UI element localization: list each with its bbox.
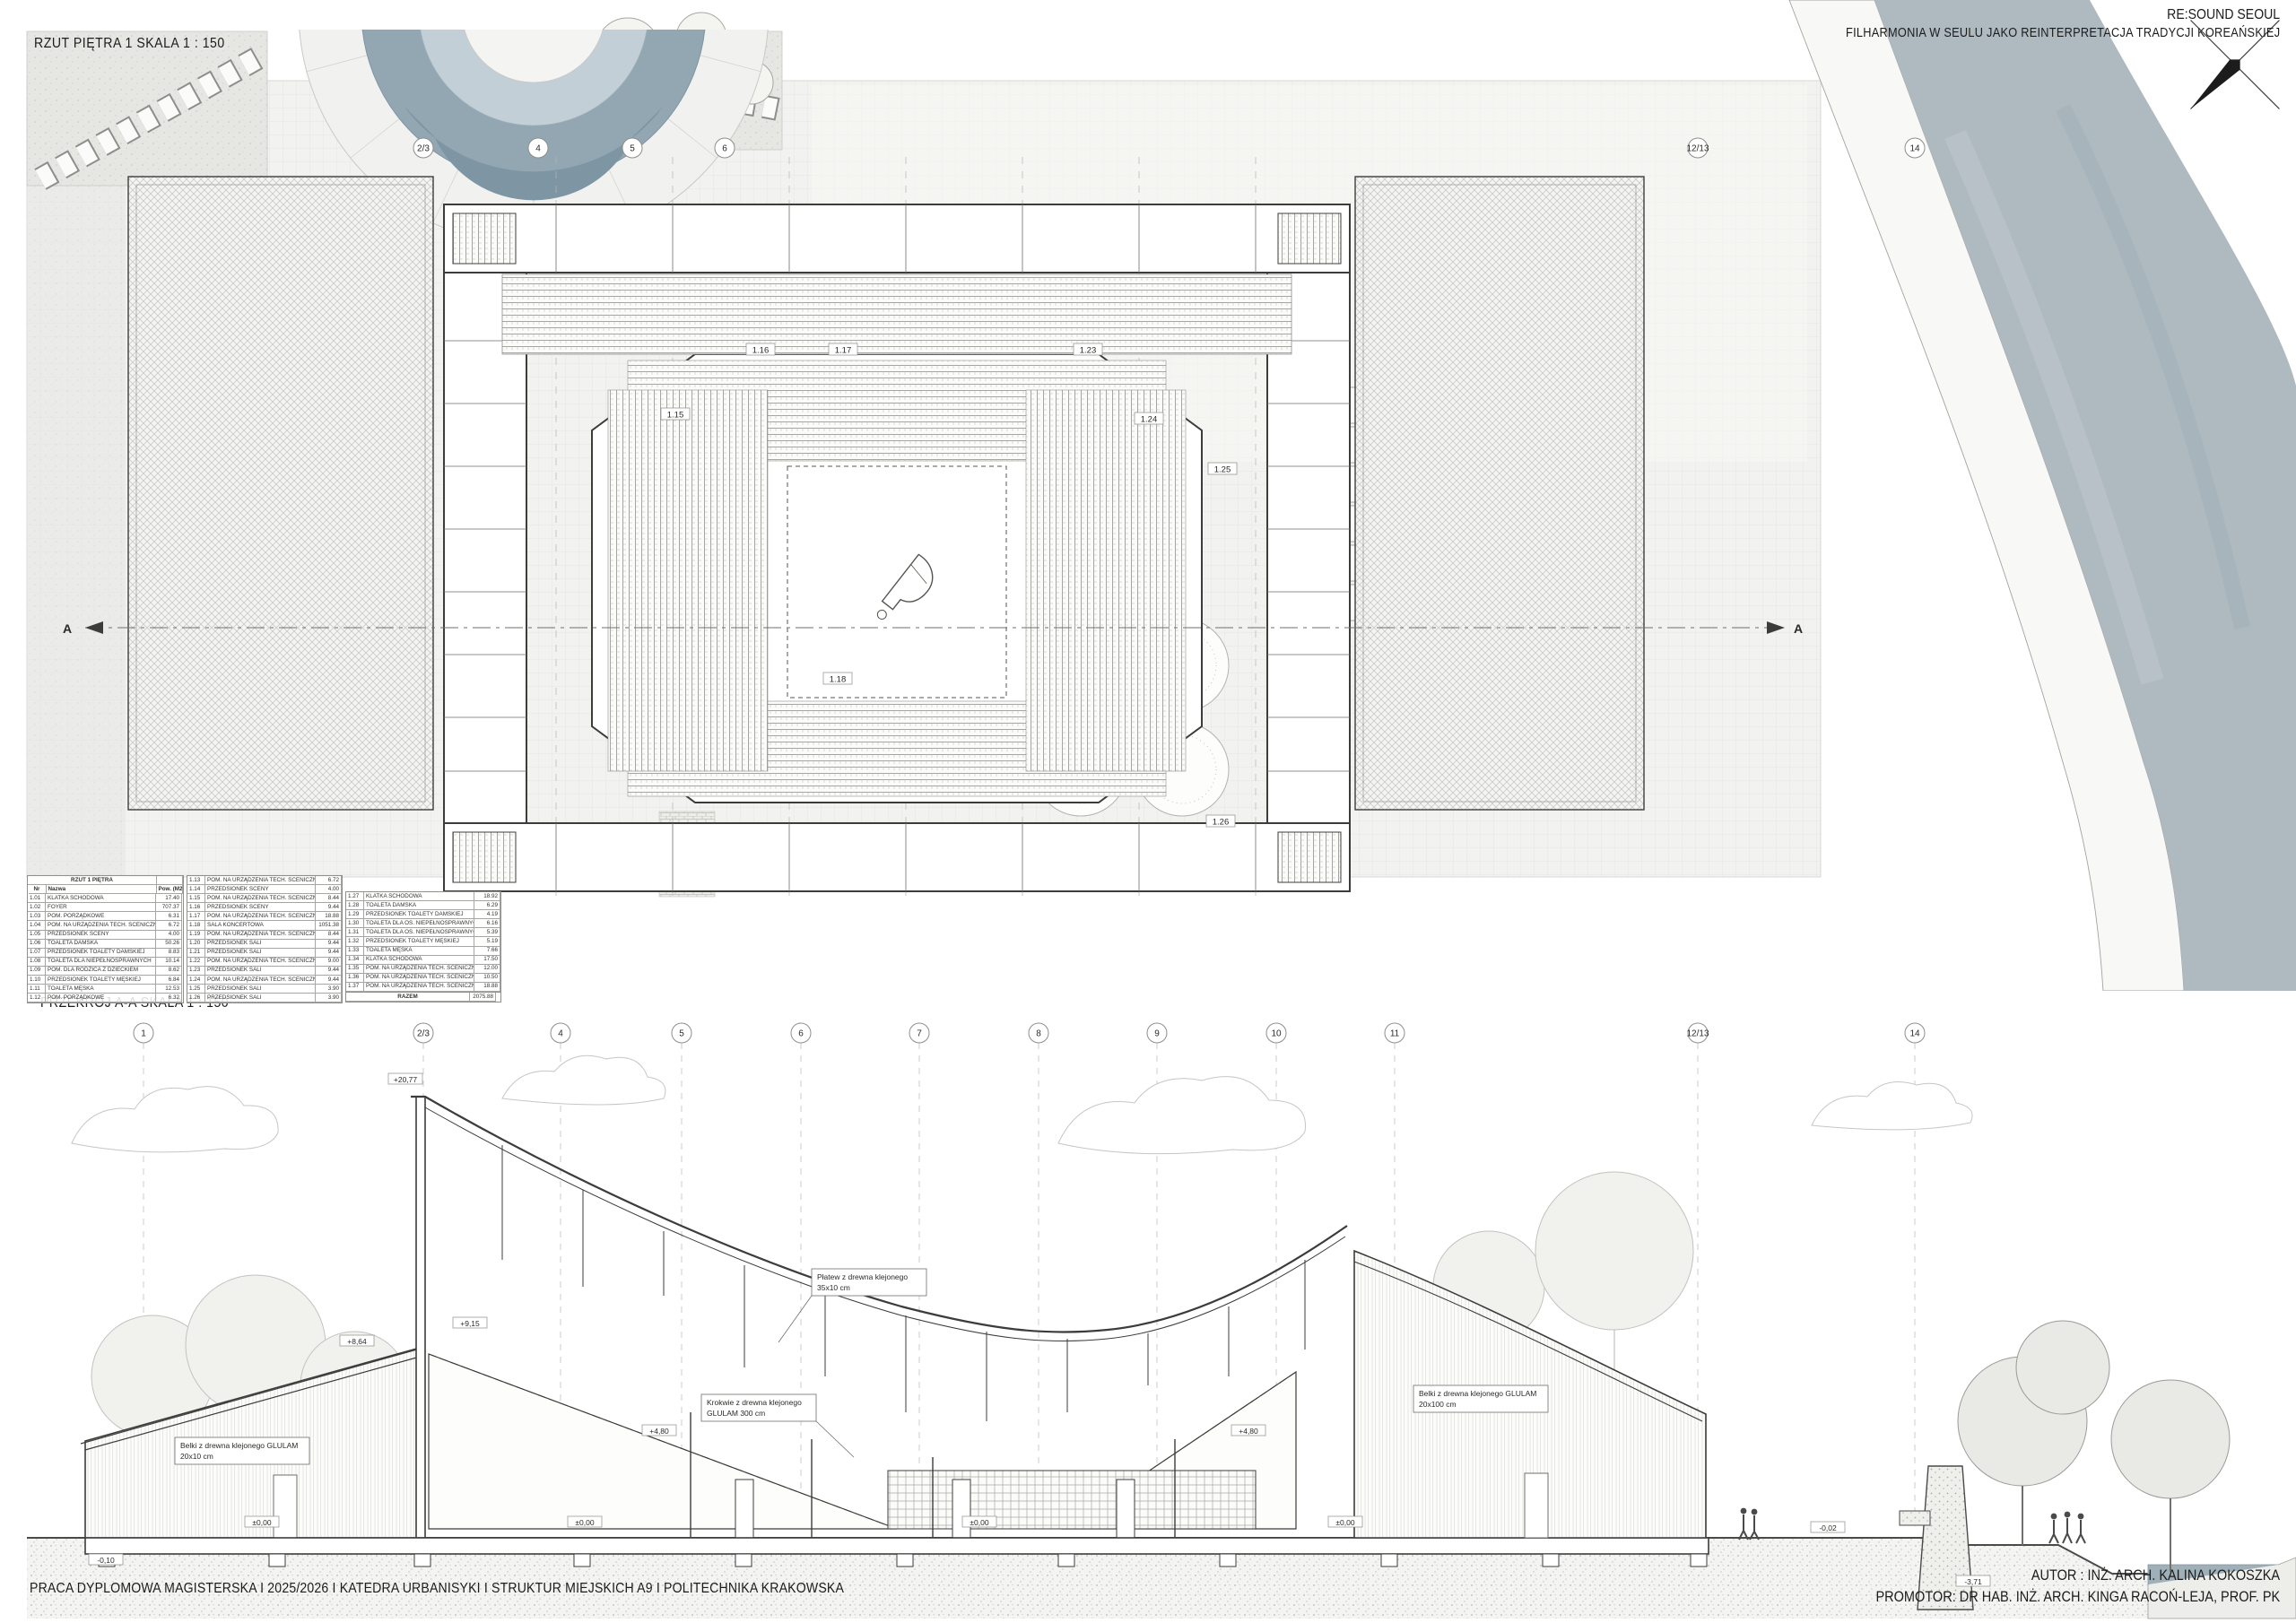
schedule-row: 1.02 FOYER 707.37 xyxy=(28,903,183,912)
svg-text:Płatew z drewna klejonego: Płatew z drewna klejonego xyxy=(817,1272,908,1281)
svg-text:6: 6 xyxy=(798,1029,804,1039)
schedule-row: 1.09 POM. DLA RODZICA Z DZIECKIEM 8.62 xyxy=(28,967,183,976)
wing-south xyxy=(444,823,1350,891)
presentation-board: { "colors":{"paper":"#ffffff","line":"#3… xyxy=(0,0,2296,1623)
annotation-krokwie: Krokwie z drewna klejonego GLULAM 300 cm xyxy=(701,1394,854,1457)
schedule-row: 1.06 TOALETA DAMSKA 50.26 xyxy=(28,940,183,949)
hall-seating-east xyxy=(1026,390,1186,771)
svg-text:14: 14 xyxy=(1909,1029,1920,1039)
svg-text:20x100 cm: 20x100 cm xyxy=(1419,1400,1457,1409)
schedule-group-3: 1.27 KLATKA SCHODOWA 18.92 1.28 TOALETA … xyxy=(345,891,501,993)
svg-text:±0,00: ±0,00 xyxy=(970,1518,988,1527)
river-corridor xyxy=(1789,0,2296,991)
svg-text:-0,10: -0,10 xyxy=(97,1556,115,1565)
schedule-row: 1.22 POM. NA URZĄDZENIA TECH. SCENICZNEJ… xyxy=(187,958,342,967)
svg-text:GLULAM 300 cm: GLULAM 300 cm xyxy=(707,1409,765,1418)
people-trio xyxy=(2049,1512,2085,1543)
schedule-row: 1.15 POM. NA URZĄDZENIA TECH. SCENICZNEJ… xyxy=(187,894,342,903)
svg-text:5: 5 xyxy=(679,1029,684,1039)
total-label: RAZEM xyxy=(346,993,470,1002)
svg-text:+8,64: +8,64 xyxy=(347,1337,367,1346)
svg-text:1.15: 1.15 xyxy=(667,411,684,421)
wing-north xyxy=(444,204,1350,273)
schedule-total-row: RAZEM 2075.88 xyxy=(345,993,501,1002)
room-schedule: RZUT 1 PIĘTRA Nr Nazwa Pow. (M2) 1.01 KL… xyxy=(27,875,483,1003)
floor-slab xyxy=(85,1538,1709,1554)
svg-text:+4,80: +4,80 xyxy=(649,1427,669,1436)
schedule-row: 1.23 PRZEDSIONEK SALI 9.44 xyxy=(187,967,342,976)
rooms-west xyxy=(444,273,526,823)
schedule-row: 1.33 TOALETA MĘSKA 7.66 xyxy=(346,947,500,956)
svg-text:+9,15: +9,15 xyxy=(460,1319,480,1328)
schedule-row: 1.34 KLATKA SCHODOWA 17.50 xyxy=(346,956,500,965)
svg-text:±0,00: ±0,00 xyxy=(252,1518,271,1527)
section-trees-right xyxy=(1958,1321,2230,1572)
schedule-group-2: 1.13 POM. NA URZĄDZENIA TECH. SCENICZNEJ… xyxy=(187,875,343,1003)
board-title: RE:SOUND SEOUL xyxy=(2167,7,2280,23)
schedule-row: 1.37 POM. NA URZĄDZENIA TECH. SCENICZNEJ… xyxy=(346,983,500,992)
svg-text:4: 4 xyxy=(558,1029,563,1039)
schedule-group-1: RZUT 1 PIĘTRA Nr Nazwa Pow. (M2) 1.01 KL… xyxy=(27,875,184,1003)
svg-text:2/3: 2/3 xyxy=(417,1029,430,1039)
section-grid-bubbles: 1 2/3 4 5 6 7 8 9 10 11 12/13 14 xyxy=(134,1023,1925,1043)
svg-text:Belki z drewna klejonego GLULA: Belki z drewna klejonego GLULAM xyxy=(1419,1389,1536,1398)
schedule-row: 1.32 PRZEDSIONEK TOALETY MĘSKIEJ 5.19 xyxy=(346,937,500,946)
svg-text:Krokwie z drewna klejonego: Krokwie z drewna klejonego xyxy=(707,1398,802,1407)
section-drawing: 1 2/3 4 5 6 7 8 9 10 11 12/13 14 xyxy=(0,991,2296,1623)
schedule-row: 1.35 POM. NA URZĄDZENIA TECH. SCENICZNEJ… xyxy=(346,965,500,974)
schedule-row: 1.11 TOALETA MĘSKA 12.53 xyxy=(28,985,183,994)
svg-text:1.23: 1.23 xyxy=(1080,346,1097,356)
floor-plan-drawing: A A 2/3 4 5 6 12/13 14 1.15 1.16 1.17 1.… xyxy=(0,0,2296,991)
svg-text:+20,77: +20,77 xyxy=(394,1075,418,1084)
svg-text:12/13: 12/13 xyxy=(1686,144,1709,154)
choir-risers xyxy=(888,1471,1256,1529)
svg-text:6: 6 xyxy=(722,144,727,154)
people-pair xyxy=(1739,1508,1759,1540)
title-block: RE:SOUND SEOUL FILHARMONIA W SEULU JAKO … xyxy=(1787,7,2280,40)
schedule-row: 1.26 PRZEDSIONEK SALI 3.90 xyxy=(187,994,342,1002)
svg-text:1.16: 1.16 xyxy=(752,346,770,356)
svg-text:1.25: 1.25 xyxy=(1214,465,1231,475)
clouds xyxy=(72,1055,1972,1153)
schedule-row: 1.01 KLATKA SCHODOWA 17.40 xyxy=(28,894,183,903)
schedule-row: 1.31 TOALETA DLA OS. NIEPEŁNOSPRAWNYCH 5… xyxy=(346,928,500,937)
schedule-row: 1.36 POM. NA URZĄDZENIA TECH. SCENICZNEJ… xyxy=(346,974,500,983)
schedule-row: 1.17 POM. NA URZĄDZENIA TECH. SCENICZNEJ… xyxy=(187,912,342,921)
author-line: AUTOR : INŻ. ARCH. KALINA KOKOSZKA xyxy=(2031,1565,2280,1586)
svg-text:1.18: 1.18 xyxy=(830,675,847,685)
svg-text:-0,02: -0,02 xyxy=(1819,1523,1837,1532)
annotation-platew: Płatew z drewna klejonego 35x10 cm xyxy=(778,1269,926,1342)
footer-credits: PRACA DYPLOMOWA MAGISTERSKA I 2025/2026 … xyxy=(30,1581,844,1597)
svg-text:1.24: 1.24 xyxy=(1141,415,1158,425)
garden-top-left xyxy=(27,31,267,186)
schedule-row: 1.29 PRZEDSIONEK TOALETY DAMSKIEJ 4.19 xyxy=(346,910,500,919)
svg-text:±0,00: ±0,00 xyxy=(575,1518,594,1527)
plan-title: RZUT PIĘTRA 1 SKALA 1 : 150 xyxy=(34,36,225,52)
schedule-row: 1.07 PRZEDSIONEK TOALETY DAMSKIEJ 8.83 xyxy=(28,949,183,958)
schedule-row: 1.20 PRZEDSIONEK SALI 9.44 xyxy=(187,940,342,949)
svg-text:5: 5 xyxy=(630,144,635,154)
schedule-row: 1.21 PRZEDSIONEK SALI 9.44 xyxy=(187,949,342,958)
svg-text:20x10 cm: 20x10 cm xyxy=(180,1452,213,1461)
svg-text:2/3: 2/3 xyxy=(417,144,430,154)
svg-text:35x10 cm: 35x10 cm xyxy=(817,1283,850,1292)
schedule-title: RZUT 1 PIĘTRA xyxy=(28,876,157,885)
svg-text:12/13: 12/13 xyxy=(1686,1029,1709,1039)
svg-text:+4,80: +4,80 xyxy=(1239,1427,1258,1436)
svg-text:10: 10 xyxy=(1271,1029,1282,1039)
svg-text:9: 9 xyxy=(1154,1029,1160,1039)
cut-label-left: A xyxy=(63,621,72,636)
svg-text:1.17: 1.17 xyxy=(835,346,852,356)
svg-text:4: 4 xyxy=(535,144,541,154)
schedule-row: 1.18 SALA KONCERTOWA 1051.38 xyxy=(187,921,342,930)
schedule-row: 1.03 POM. PORZĄDKOWE 6.31 xyxy=(28,912,183,921)
schedule-row: 1.24 POM. NA URZĄDZENIA TECH. SCENICZNEJ… xyxy=(187,976,342,985)
schedule-row: 1.05 PRZEDSIONEK SCENY 4.00 xyxy=(28,931,183,940)
total-value: 2075.88 xyxy=(470,993,496,1002)
col-name: Nazwa xyxy=(47,885,157,894)
schedule-row: 1.10 PRZEDSIONEK TOALETY MĘSKIEJ 6.84 xyxy=(28,976,183,985)
concert-hall xyxy=(502,274,1291,803)
rake-west xyxy=(429,1354,897,1529)
annotation-belki-west: Belki z drewna klejonego GLULAM 20x10 cm xyxy=(175,1437,309,1464)
cut-label-right: A xyxy=(1794,621,1803,636)
svg-text:11: 11 xyxy=(1390,1029,1400,1039)
roof-west xyxy=(128,177,433,810)
rooms-east xyxy=(1267,273,1350,823)
svg-text:8: 8 xyxy=(1036,1029,1041,1039)
hall-seating-west xyxy=(608,390,768,771)
annotation-belki-east: Belki z drewna klejonego GLULAM 20x100 c… xyxy=(1413,1385,1548,1412)
author-block: AUTOR : INŻ. ARCH. KALINA KOKOSZKA PROMO… xyxy=(1821,1565,2280,1608)
svg-text:±0,00: ±0,00 xyxy=(1335,1518,1354,1527)
balcony-north xyxy=(502,274,1291,354)
svg-text:7: 7 xyxy=(917,1029,922,1039)
schedule-row: 1.28 TOALETA DAMSKA 6.29 xyxy=(346,901,500,910)
col-area: Pow. (M2) xyxy=(157,885,183,894)
mast xyxy=(416,1097,425,1538)
schedule-row: 1.04 POM. NA URZĄDZENIA TECH. SCENICZNEJ… xyxy=(28,921,183,930)
schedule-row: 1.12 POM. PORZĄDKOWE 6.32 xyxy=(28,994,183,1002)
schedule-row: 1.08 TOALETA DLA NIEPEŁNOSPRAWNYCH 10.14 xyxy=(28,958,183,967)
svg-text:14: 14 xyxy=(1909,144,1920,154)
schedule-row: 1.13 POM. NA URZĄDZENIA TECH. SCENICZNEJ… xyxy=(187,876,342,885)
svg-text:Belki z drewna klejonego GLULA: Belki z drewna klejonego GLULAM xyxy=(180,1441,298,1450)
promoter-line: PROMOTOR: DR HAB. INŻ. ARCH. KINGA RACOŃ… xyxy=(1875,1586,2280,1608)
schedule-row: 1.25 PRZEDSIONEK SALI 3.90 xyxy=(187,985,342,994)
col-nr: Nr xyxy=(29,885,47,894)
board-subtitle: FILHARMONIA W SEULU JAKO REINTERPRETACJA… xyxy=(1846,26,2280,40)
svg-text:1: 1 xyxy=(141,1029,146,1039)
roof-east xyxy=(1355,177,1644,810)
schedule-row: 1.14 PRZEDSIONEK SCENY 4.00 xyxy=(187,885,342,894)
svg-text:1.26: 1.26 xyxy=(1213,818,1230,828)
schedule-row: 1.27 KLATKA SCHODOWA 18.92 xyxy=(346,892,500,901)
building-plan xyxy=(128,177,1644,891)
schedule-row: 1.19 POM. NA URZĄDZENIA TECH. SCENICZNEJ… xyxy=(187,931,342,940)
schedule-row: 1.30 TOALETA DLA OS. NIEPEŁNOSPRAWNYCH 6… xyxy=(346,919,500,928)
schedule-row: 1.16 PRZEDSIONEK SCENY 9.44 xyxy=(187,903,342,912)
